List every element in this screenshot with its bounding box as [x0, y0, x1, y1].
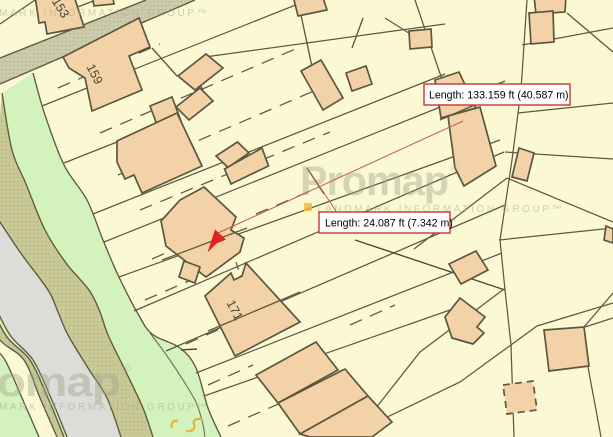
- svg-text:LANDMARK INFORMATION GROUP™: LANDMARK INFORMATION GROUP™: [0, 402, 209, 413]
- svg-text:Length: 24.087 ft (7.342 m): Length: 24.087 ft (7.342 m): [325, 218, 453, 230]
- svg-text:LANDMARK INFORMATION GROUP™: LANDMARK INFORMATION GROUP™: [0, 8, 209, 19]
- svg-text:®: ®: [123, 363, 131, 375]
- svg-text:Length: 133.159 ft (40.587 m): Length: 133.159 ft (40.587 m): [429, 90, 569, 102]
- svg-text:Promap: Promap: [0, 358, 120, 405]
- svg-text:Promap: Promap: [300, 157, 448, 204]
- svg-text:®: ®: [450, 163, 458, 175]
